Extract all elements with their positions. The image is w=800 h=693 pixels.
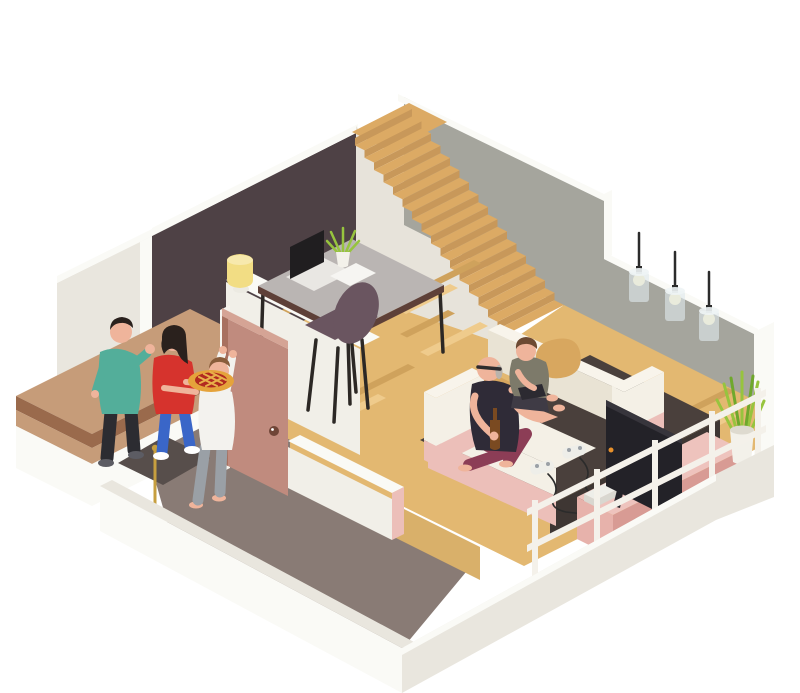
boy-hand <box>219 346 227 354</box>
pendant-glass-top <box>699 307 719 315</box>
grandpa-hand <box>490 432 499 441</box>
controller-button <box>535 464 539 468</box>
pie-filling <box>195 373 227 388</box>
woman-shoe <box>153 452 169 460</box>
kid-foot <box>546 395 558 402</box>
man-hand <box>91 390 99 398</box>
isometric-home-scene: Isometric cutaway illustration of a two-… <box>0 0 800 693</box>
pendant-glass <box>665 291 685 321</box>
pie <box>188 370 234 392</box>
pendant-glass <box>629 272 649 302</box>
pendant-glass-top <box>665 287 685 295</box>
bottle-neck <box>493 408 497 422</box>
low-wall-endcap <box>392 487 404 540</box>
controller-button <box>578 446 582 450</box>
grandpa-foot <box>458 465 472 472</box>
lamp-shade-top <box>227 255 253 265</box>
pendant-glass-top <box>629 268 649 276</box>
pendant-glass <box>699 311 719 341</box>
illustration-canvas: Isometric cutaway illustration of a two-… <box>0 0 800 693</box>
boy-torso <box>198 386 235 450</box>
gray-wall-notch <box>604 190 612 259</box>
grandpa-glasses <box>478 367 500 369</box>
man-waving-hand <box>145 344 155 354</box>
door-knob-highlight <box>271 428 274 431</box>
kid-foot <box>553 405 565 412</box>
grandpa-foot <box>499 461 513 468</box>
controller-button <box>567 448 571 452</box>
door-knob <box>269 426 279 436</box>
man-shoe <box>128 451 144 459</box>
boy-hand <box>229 350 237 358</box>
desk-plant-pot <box>336 252 350 268</box>
tv-power-light <box>609 448 614 453</box>
controller-button <box>546 462 550 466</box>
man-shoe <box>98 459 114 467</box>
woman-shoe <box>184 446 200 454</box>
